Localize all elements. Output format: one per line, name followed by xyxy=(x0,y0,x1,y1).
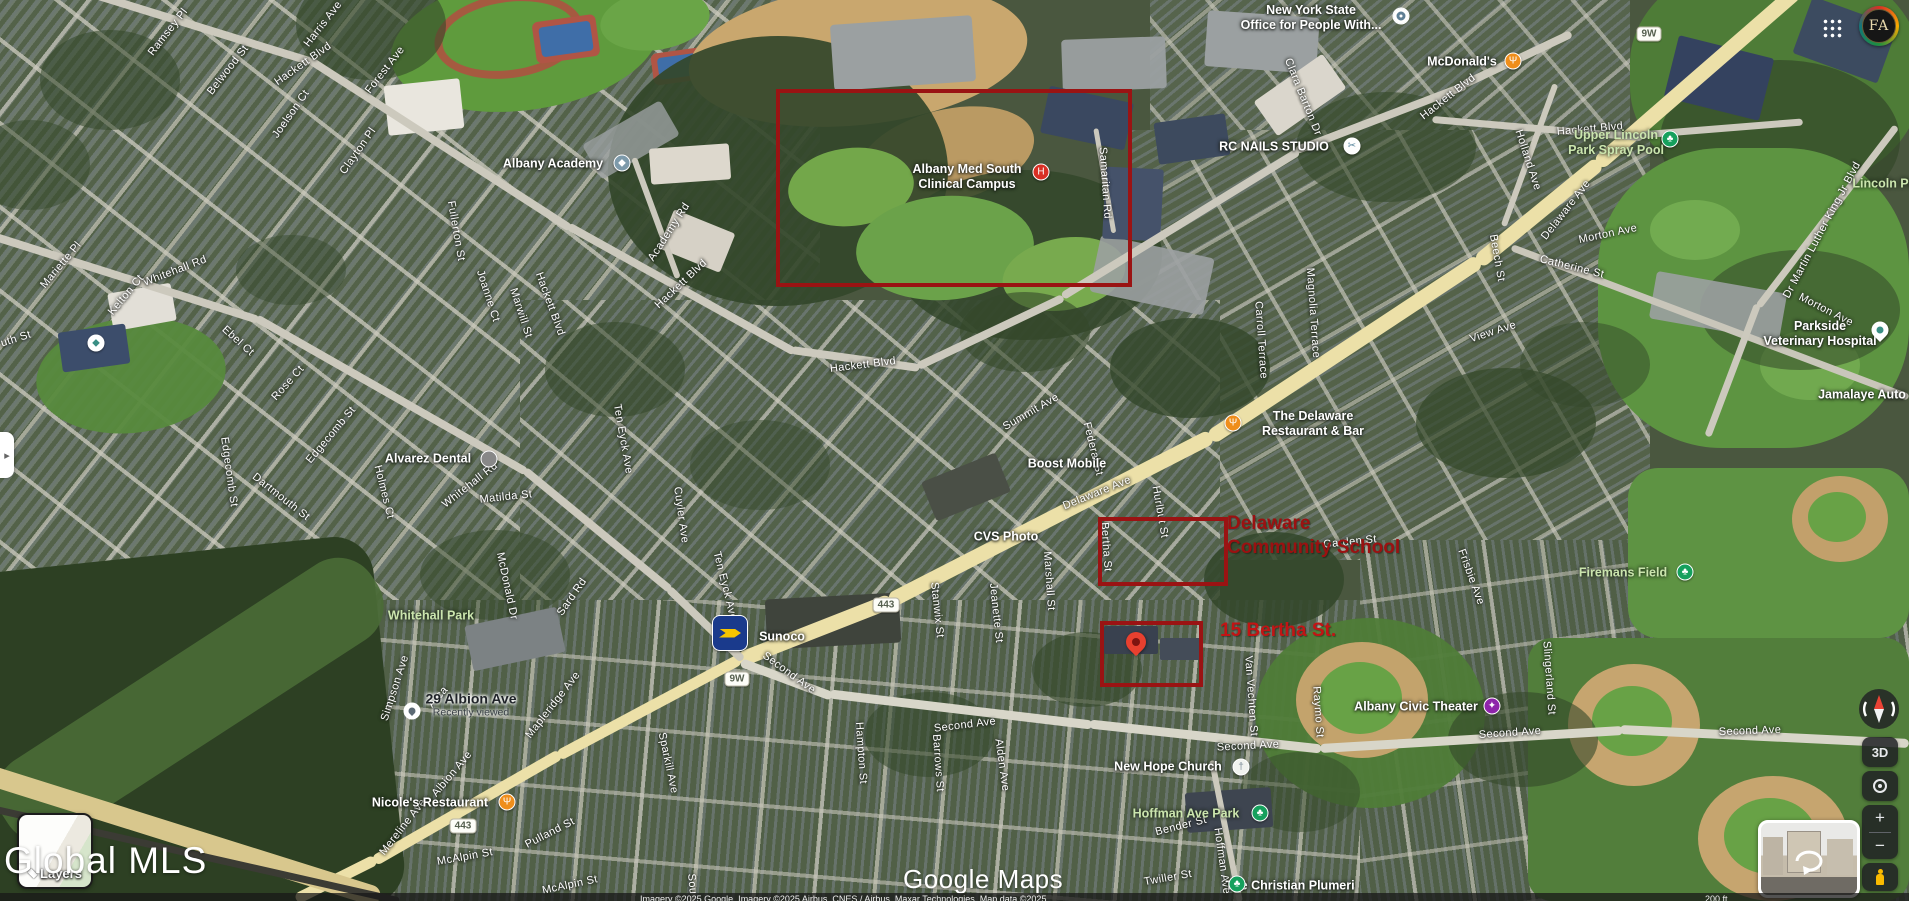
listing-annotations: Delaware Community School 15 Bertha St. xyxy=(0,0,1909,901)
pegman-icon xyxy=(1875,869,1885,886)
map-canvas[interactable]: Ramsey PlBelwood StHackett BlvdHarris Av… xyxy=(0,0,1909,901)
my-location-button[interactable] xyxy=(1862,771,1898,801)
zoom-control: + − xyxy=(1862,805,1898,859)
avatar-initials: FA xyxy=(1862,9,1896,43)
zoom-in-button[interactable]: + xyxy=(1862,807,1898,829)
scale-text: 200 ft xyxy=(1705,894,1728,901)
street-view-house xyxy=(1827,839,1853,875)
albany-med-campus-box xyxy=(776,89,1132,287)
pegman-button[interactable] xyxy=(1862,863,1898,891)
google-maps-logo: Google Maps xyxy=(903,864,1063,895)
attribution-bar: Imagery ©2025 Google, Imagery ©2025 Airb… xyxy=(0,893,1909,901)
compass-icon xyxy=(1858,688,1900,730)
rotate-view-icon xyxy=(1789,845,1829,875)
delaware-community-school-box xyxy=(1098,517,1228,586)
account-avatar[interactable]: FA xyxy=(1859,6,1899,46)
map-attribution: Imagery ©2025 Google, Imagery ©2025 Airb… xyxy=(640,894,1046,901)
chevron-right-icon: ▸ xyxy=(4,449,10,462)
street-view-house xyxy=(1763,837,1783,875)
global-mls-watermark: Global MLS xyxy=(4,840,207,882)
delaware-community-school-label: Delaware Community School xyxy=(1227,512,1400,560)
15-bertha-st-box xyxy=(1100,621,1203,687)
side-panel-toggle[interactable]: ▸ xyxy=(0,432,14,478)
google-apps-grid-icon[interactable] xyxy=(1822,18,1843,39)
15-bertha-st-label: 15 Bertha St. xyxy=(1220,620,1336,642)
3d-view-button[interactable]: 3D xyxy=(1862,737,1898,767)
compass-control[interactable] xyxy=(1858,688,1900,730)
street-view-preview[interactable] xyxy=(1758,820,1860,898)
zoom-out-button[interactable]: − xyxy=(1862,835,1898,857)
my-location-icon xyxy=(1873,779,1887,793)
zoom-divider xyxy=(1869,832,1891,833)
